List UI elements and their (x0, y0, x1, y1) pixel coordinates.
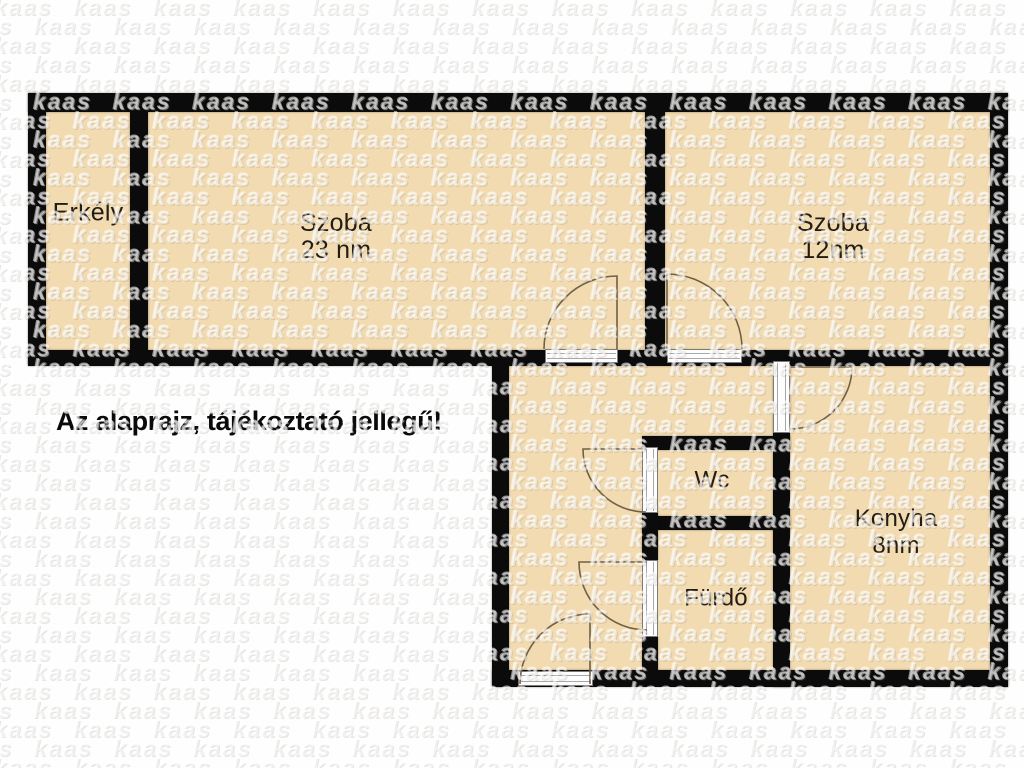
disclaimer-text: Az alaprajz, tájékoztató jellegű! (56, 406, 442, 437)
label-room1-name: Szoba (300, 210, 372, 237)
watermark-row: kaas kaas kaas kaas kaas kaas kaas kaas … (0, 735, 1024, 762)
door-kitchen (773, 361, 790, 433)
wall-middle-horizontal (28, 350, 1008, 366)
watermark-row: kaas kaas kaas kaas kaas kaas kaas kaas … (0, 697, 1024, 724)
wall-outer-right (990, 93, 1008, 687)
label-room2-name: Szoba (797, 210, 869, 237)
wall-bath-left-upper (642, 511, 658, 560)
room1-floor (146, 110, 647, 354)
label-balcony-text: Erkély (53, 200, 124, 227)
door-entrance (518, 671, 593, 686)
watermark-row: kaas kaas kaas kaas kaas kaas kaas kaas … (0, 13, 1024, 40)
wall-outer-left (28, 93, 46, 365)
label-kitchen-area: 8nm (855, 532, 938, 559)
watermark-row: kaas kaas kaas kaas kaas kaas kaas kaas … (0, 51, 1024, 78)
label-bathroom: Fürdő (684, 585, 748, 612)
label-wc: Wc (694, 467, 729, 494)
label-room1: Szoba 23 nm (300, 210, 372, 264)
label-room1-area: 23 nm (300, 237, 372, 264)
watermark-row: kaas kaas kaas kaas kaas kaas kaas kaas … (0, 0, 1024, 21)
wall-wc-bathroom-divider (642, 516, 790, 530)
wall-bath-left-lower (642, 637, 658, 677)
label-kitchen: Konyha 8nm (855, 505, 938, 559)
label-room2-area: 12nm (797, 237, 869, 264)
wall-balcony-divider (130, 110, 148, 352)
door-room1 (545, 349, 618, 363)
label-room2: Szoba 12nm (797, 210, 869, 264)
door-wc (642, 447, 658, 513)
wall-hall-left (492, 350, 509, 687)
watermark-row: kaas kaas kaas kaas kaas kaas kaas kaas … (0, 716, 1024, 743)
door-bathroom (642, 560, 658, 637)
wall-outer-top (28, 93, 1008, 112)
floorplan-image: Erkély Szoba 23 nm Szoba 12nm Wc Fürdő K… (0, 0, 1024, 768)
label-wc-text: Wc (694, 467, 729, 494)
watermark-row: kaas kaas kaas kaas kaas kaas kaas kaas … (0, 754, 1024, 768)
door-room2 (667, 349, 742, 363)
watermark-row: kaas kaas kaas kaas kaas kaas kaas kaas … (0, 32, 1024, 59)
label-balcony: Erkély (53, 200, 124, 227)
wall-room-divider (645, 110, 665, 352)
balcony-floor (44, 110, 132, 354)
label-kitchen-name: Konyha (855, 505, 938, 532)
label-bathroom-text: Fürdő (684, 585, 748, 612)
wall-wc-top (642, 436, 790, 450)
